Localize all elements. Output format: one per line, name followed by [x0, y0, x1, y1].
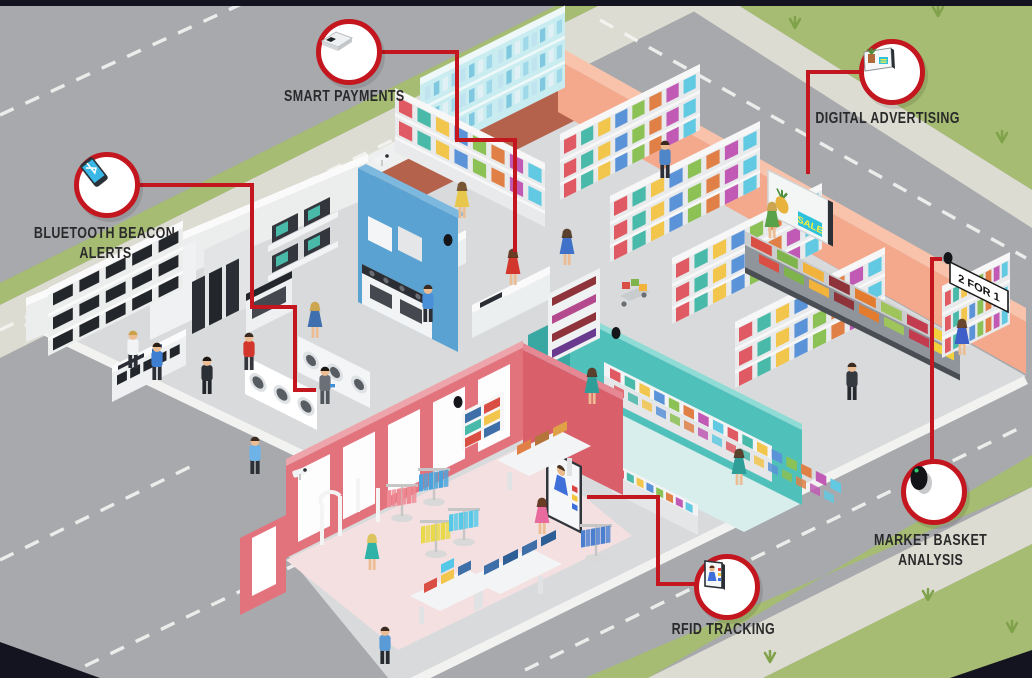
callout-digital-advertising: DIGITAL ADVERTISING [859, 39, 925, 105]
callout-label-digital-advertising: DIGITAL ADVERTISING [816, 109, 960, 129]
callout-bubble [316, 19, 382, 85]
callout-smart-payments: SMART PAYMENTS [316, 19, 382, 85]
dome-camera-pink-wall [454, 396, 463, 408]
dome-camera-teal-wall [612, 327, 621, 339]
callout-label-rfid-tracking: RFID TRACKING [671, 620, 775, 640]
dome-camera-grocery [944, 252, 953, 264]
smart-retail-infographic: 2 FOR 1 SALE [0, 0, 1032, 678]
callout-bubble [859, 39, 925, 105]
callout-label-bluetooth-line1: BLUETOOTH BEACON [34, 224, 175, 244]
security-camera-icon [901, 459, 941, 499]
smartphone-bluetooth-icon [74, 152, 114, 192]
callout-bluetooth-beacon: BLUETOOTH BEACON ALERTS [74, 152, 140, 218]
callout-bubble [901, 459, 967, 525]
callout-bubble [694, 554, 760, 620]
frame-strip-top [0, 0, 1032, 6]
smart-mirror-icon [694, 554, 734, 594]
dome-camera-blue-wall [444, 234, 453, 246]
callout-rfid-tracking: RFID TRACKING [694, 554, 760, 620]
callout-bubble [74, 152, 140, 218]
callout-label-smart-payments: SMART PAYMENTS [284, 87, 405, 107]
entrance-door [252, 526, 276, 596]
callout-label-market-basket-line1: MARKET BASKET [874, 531, 987, 551]
callout-market-basket: MARKET BASKET ANALYSIS [901, 459, 967, 525]
ad-display-icon [859, 39, 899, 79]
phone-in-hand [330, 384, 335, 387]
callout-label-market-basket-line2: ANALYSIS [898, 551, 963, 571]
callout-label-bluetooth-line2: ALERTS [79, 244, 131, 264]
payment-terminal-icon [316, 19, 356, 59]
